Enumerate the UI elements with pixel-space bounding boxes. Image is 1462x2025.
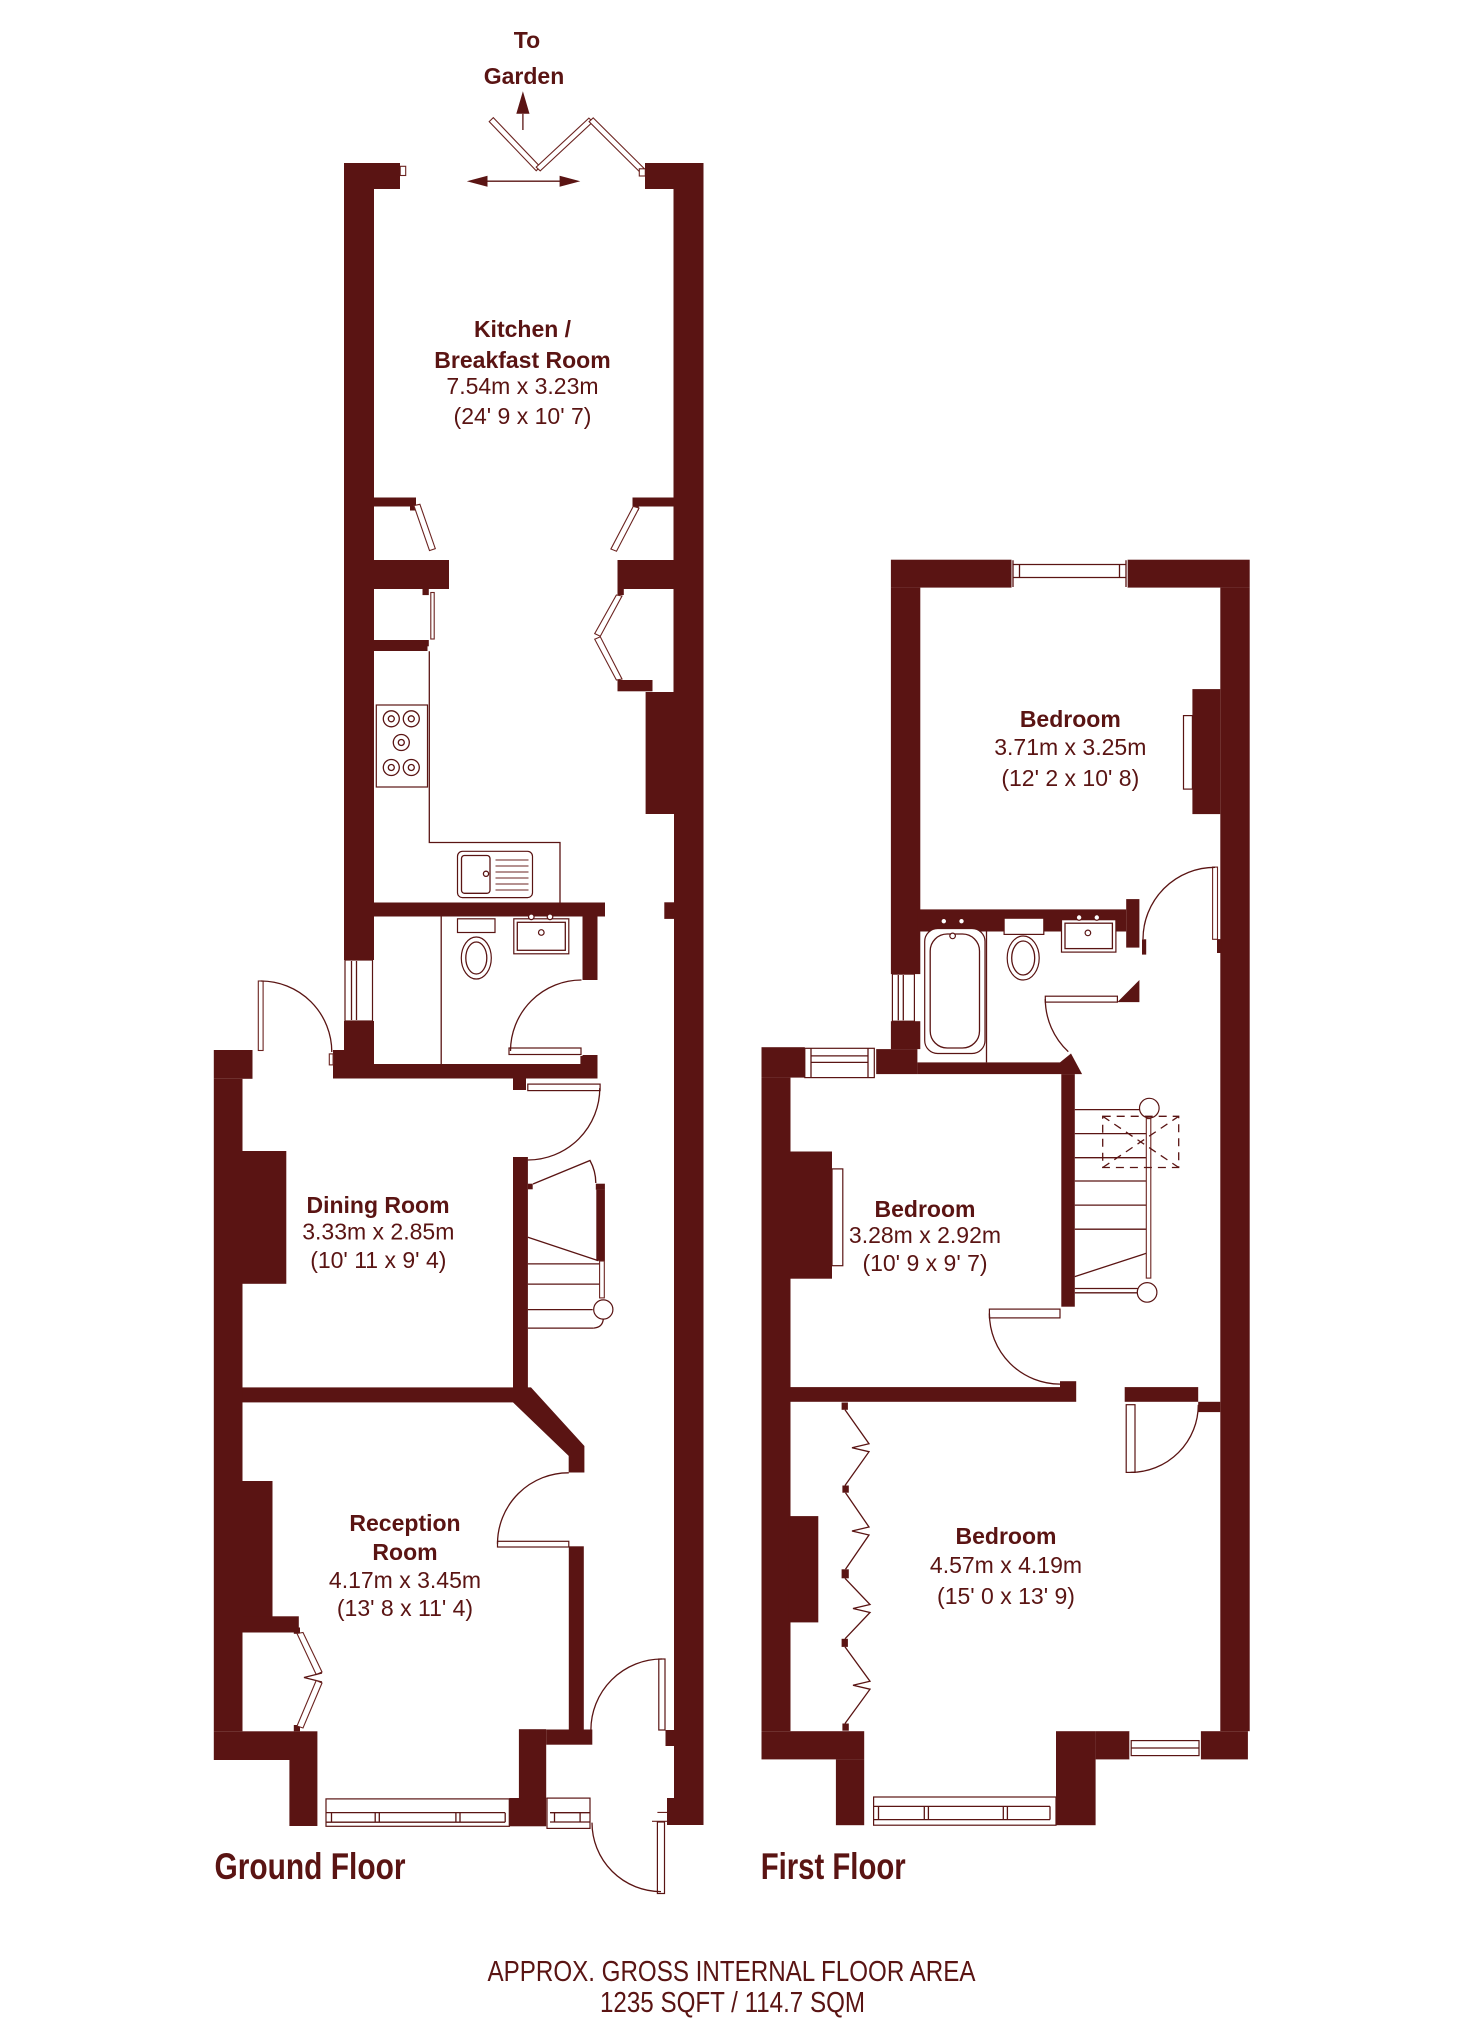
- svg-text:1235 SQFT / 114.7 SQM: 1235 SQFT / 114.7 SQM: [600, 1987, 865, 2019]
- svg-text:Ground Floor: Ground Floor: [215, 1846, 406, 1887]
- svg-text:3.28m x 2.92m: 3.28m x 2.92m: [849, 1222, 1001, 1248]
- svg-text:(13' 8 x 11' 4): (13' 8 x 11' 4): [337, 1595, 473, 1621]
- svg-text:(10' 11 x 9' 4): (10' 11 x 9' 4): [310, 1247, 446, 1273]
- svg-text:4.57m x 4.19m: 4.57m x 4.19m: [930, 1552, 1082, 1578]
- svg-text:3.33m x 2.85m: 3.33m x 2.85m: [302, 1219, 454, 1245]
- svg-text:Bedroom: Bedroom: [956, 1523, 1057, 1549]
- svg-text:Garden: Garden: [484, 63, 565, 89]
- svg-text:Dining Room: Dining Room: [306, 1192, 449, 1218]
- svg-text:4.17m x 3.45m: 4.17m x 3.45m: [329, 1567, 481, 1593]
- svg-text:(15' 0 x 13' 9): (15' 0 x 13' 9): [937, 1583, 1075, 1609]
- svg-text:Breakfast Room: Breakfast Room: [434, 347, 610, 373]
- svg-text:Room: Room: [372, 1539, 437, 1565]
- svg-text:7.54m x 3.23m: 7.54m x 3.23m: [446, 373, 598, 399]
- svg-text:Bedroom: Bedroom: [1020, 706, 1121, 732]
- svg-text:APPROX. GROSS INTERNAL FLOOR A: APPROX. GROSS INTERNAL FLOOR AREA: [488, 1956, 977, 1988]
- svg-text:(12' 2 x 10' 8): (12' 2 x 10' 8): [1001, 765, 1139, 791]
- svg-text:3.71m x 3.25m: 3.71m x 3.25m: [994, 734, 1146, 760]
- svg-text:Bedroom: Bedroom: [875, 1196, 976, 1222]
- svg-text:Reception: Reception: [349, 1510, 460, 1536]
- svg-text:Kitchen /: Kitchen /: [474, 316, 572, 342]
- svg-text:(24' 9 x 10' 7): (24' 9 x 10' 7): [454, 403, 592, 429]
- svg-text:(10' 9 x 9' 7): (10' 9 x 9' 7): [862, 1250, 987, 1276]
- svg-text:To: To: [514, 27, 540, 53]
- svg-text:First Floor: First Floor: [761, 1846, 906, 1887]
